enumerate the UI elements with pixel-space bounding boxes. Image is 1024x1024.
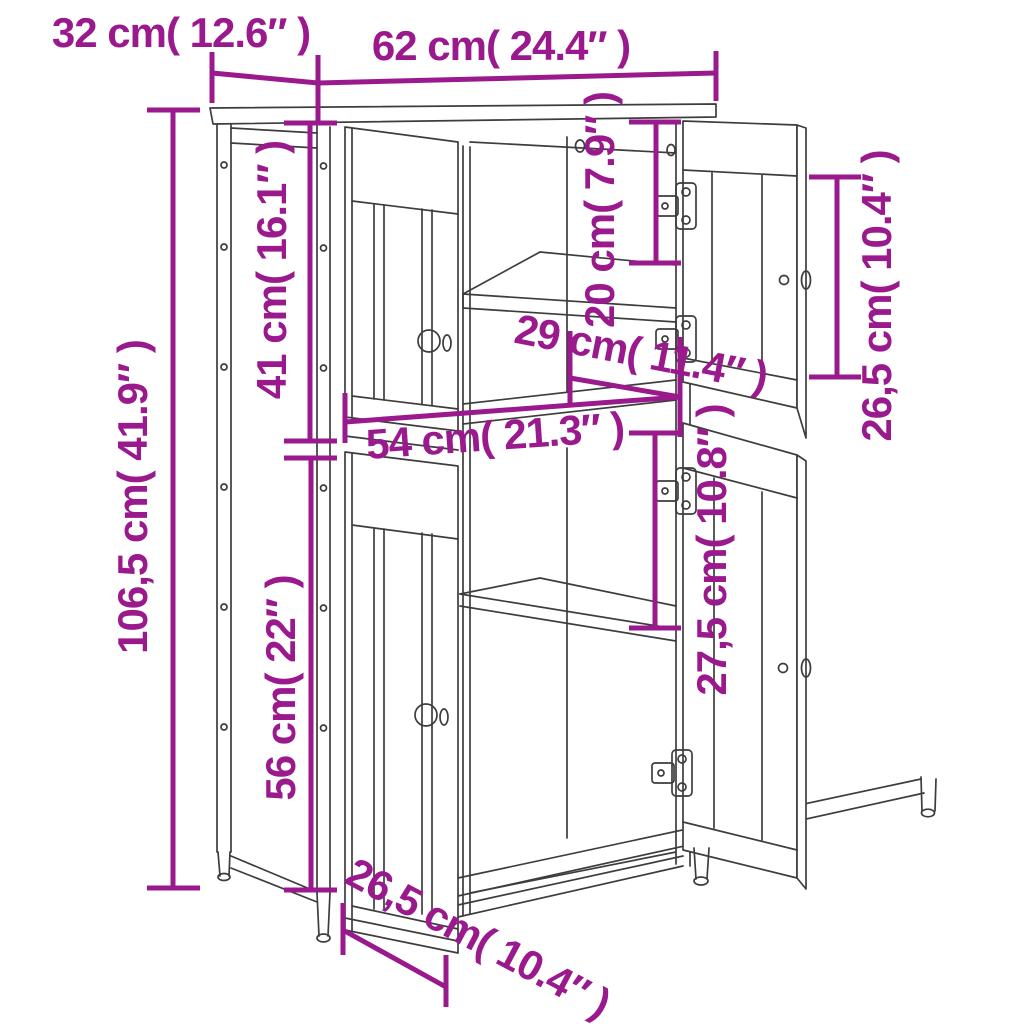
dim-label-top-depth: 32 cm( 12.6″ ) [52, 12, 310, 54]
cabinet-dimension-diagram: 32 cm( 12.6″ ) 62 cm( 24.4″ ) 106,5 cm( … [0, 0, 1024, 1024]
dim-label-lower-compartment: 27,5 cm( 10.8″ ) [691, 404, 733, 695]
center-post [463, 146, 470, 916]
dim-label-overall-height: 106,5 cm( 41.9″ ) [112, 340, 154, 654]
dim-label-lower-section: 56 cm( 22″ ) [260, 575, 302, 800]
dim-label-top-compartment: 20 cm( 7.9″ ) [579, 92, 621, 328]
left-front-post [317, 126, 330, 942]
left-back-post [217, 124, 231, 881]
dim-label-top-width: 62 cm( 24.4″ ) [372, 25, 630, 67]
dim-label-upper-section: 41 cm( 16.1″ ) [251, 141, 293, 399]
bottom-front-edge [458, 856, 683, 917]
dim-label-right-door-height: 26,5 cm( 10.4″ ) [856, 150, 898, 441]
upper-left-door [345, 127, 458, 431]
rear-right-leg [921, 777, 936, 817]
